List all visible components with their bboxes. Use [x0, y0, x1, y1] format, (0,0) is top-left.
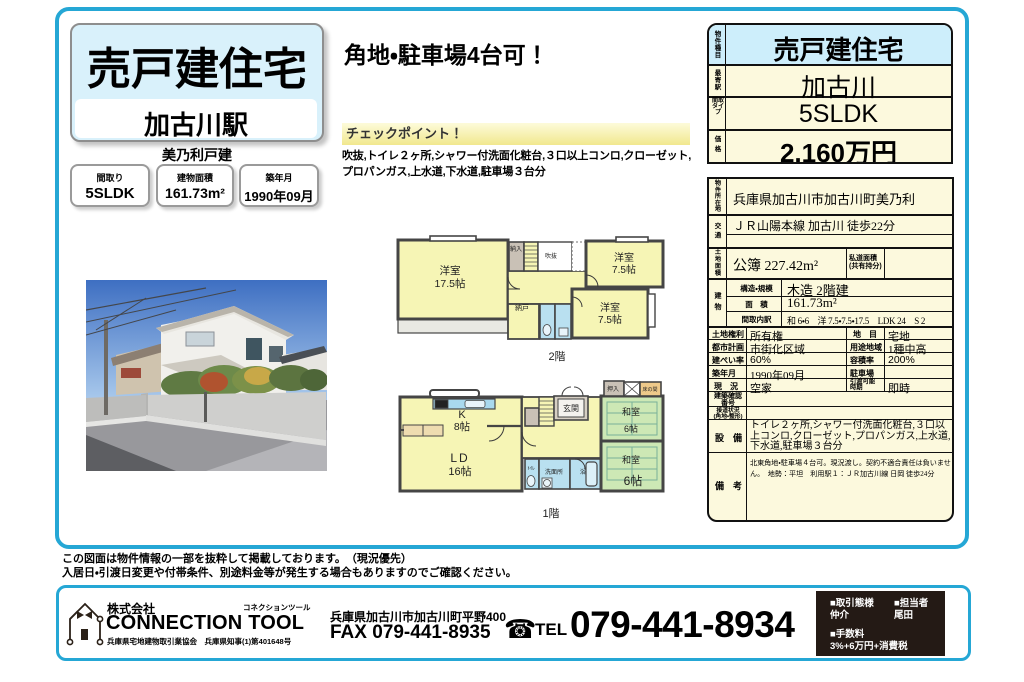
- svg-text:浴: 浴: [580, 468, 586, 476]
- svg-text:和室: 和室: [622, 454, 640, 465]
- svg-text:押入: 押入: [607, 385, 619, 393]
- svg-text:吹抜: 吹抜: [545, 252, 557, 260]
- svg-text:納戸: 納戸: [515, 303, 529, 312]
- svg-text:1階: 1階: [542, 507, 559, 520]
- svg-text:洋室: 洋室: [600, 301, 620, 314]
- svg-text:納入: 納入: [510, 245, 522, 253]
- svg-text:8帖: 8帖: [454, 420, 471, 433]
- svg-text:2階: 2階: [548, 350, 565, 363]
- svg-text:16帖: 16帖: [448, 465, 471, 478]
- svg-text:7.5帖: 7.5帖: [612, 263, 636, 276]
- svg-text:床の間: 床の間: [642, 387, 657, 393]
- svg-text:17.5帖: 17.5帖: [435, 277, 466, 290]
- svg-text:LD: LD: [450, 451, 469, 465]
- svg-text:6帖: 6帖: [624, 473, 643, 488]
- svg-text:和室: 和室: [622, 406, 640, 417]
- svg-text:玄関: 玄関: [563, 403, 579, 413]
- svg-text:洋室: 洋室: [614, 251, 634, 264]
- svg-text:K: K: [458, 409, 466, 421]
- svg-text:ﾄｲﾚ: ﾄｲﾚ: [527, 466, 535, 472]
- svg-text:7.5帖: 7.5帖: [598, 313, 622, 326]
- svg-text:洋室: 洋室: [440, 264, 461, 277]
- svg-text:洗面所: 洗面所: [545, 468, 563, 476]
- svg-text:6帖: 6帖: [624, 423, 638, 434]
